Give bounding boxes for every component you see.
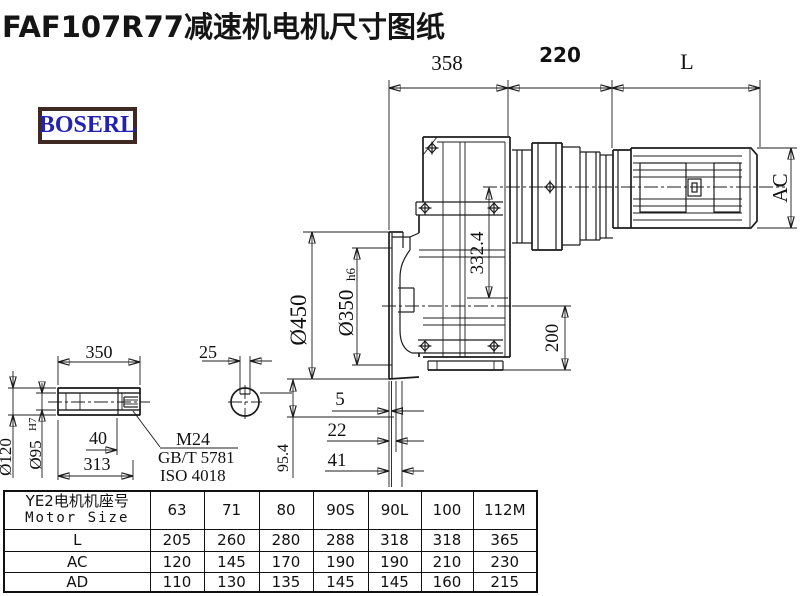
- table-cell: 190: [313, 551, 368, 572]
- dim-dia450-label: Ø450: [286, 294, 311, 345]
- table-cell: 260: [204, 529, 259, 551]
- dim-dia95-label: Ø95: [26, 440, 45, 469]
- dim-350-label: 350: [86, 342, 113, 362]
- motor: [483, 148, 785, 228]
- dim-95-4-label: 95.4: [275, 444, 292, 472]
- dim-358-label: 358: [431, 51, 463, 75]
- table-cell: 135: [259, 572, 313, 592]
- dim-dia350-label: Ø350: [334, 290, 358, 337]
- dim-25-label: 25: [199, 342, 217, 362]
- dim-220-label: 220: [539, 43, 581, 67]
- table-cell: 120: [150, 551, 204, 572]
- table-cell: 170: [259, 551, 313, 572]
- bolt-icon: [419, 340, 432, 353]
- dim-22-label: 22: [328, 420, 347, 441]
- page: { "title": "FAF107R77减速机电机尺寸图纸", "logo":…: [0, 0, 800, 596]
- motor-size-header-en: Motor Size: [5, 510, 150, 527]
- gearbox-housing: [382, 137, 525, 370]
- table-cell: 288: [313, 529, 368, 551]
- table-cell: 230: [473, 551, 537, 572]
- table-cell: 318: [368, 529, 421, 551]
- row-label: L: [4, 529, 150, 551]
- table-header-row: YE2电机机座号 Motor Size 63 71 80 90S 90L 100…: [4, 491, 537, 529]
- table-cell: 71: [204, 491, 259, 529]
- bolt-icon: [488, 340, 501, 353]
- flange-diameter-dimensions: Ø450 Ø350 h6: [286, 232, 392, 379]
- eyebolt-icon: [426, 142, 439, 155]
- table-cell: 90S: [313, 491, 368, 529]
- table-cell: 100: [421, 491, 473, 529]
- table-cell: 215: [473, 572, 537, 592]
- row-label: AD: [4, 572, 150, 592]
- dim-313-label: 313: [84, 454, 111, 474]
- table-cell: 110: [150, 572, 204, 592]
- motor-size-table: YE2电机机座号 Motor Size 63 71 80 90S 90L 100…: [3, 490, 538, 593]
- dim-41-label: 41: [328, 450, 347, 471]
- table-cell: 145: [313, 572, 368, 592]
- table-cell: 145: [368, 572, 421, 592]
- table-cell: 145: [204, 551, 259, 572]
- table-cell: 112M: [473, 491, 537, 529]
- table-cell: 280: [259, 529, 313, 551]
- table-row: L 205 260 280 288 318 318 365: [4, 529, 537, 551]
- table-cell: 210: [421, 551, 473, 572]
- dim-AC: AC: [757, 148, 797, 228]
- bolt-icon: [419, 202, 432, 215]
- thread-standard-1: GB/T 5781: [158, 448, 235, 467]
- table-row: AC 120 145 170 190 190 210 230: [4, 551, 537, 572]
- table-cell: 90L: [368, 491, 421, 529]
- table-cell: 130: [204, 572, 259, 592]
- shaft-end-view: 25: [199, 342, 272, 419]
- table-cell: 63: [150, 491, 204, 529]
- motor-adapter-bell: [512, 143, 613, 250]
- dim-L-label: L: [680, 49, 693, 74]
- dim-AC-label: AC: [768, 173, 792, 202]
- dim-dia95-tolerance: H7: [27, 417, 39, 431]
- table-header-cell: YE2电机机座号 Motor Size: [4, 491, 150, 529]
- table-cell: 160: [421, 572, 473, 592]
- table-cell: 190: [368, 551, 421, 572]
- table-cell: 318: [421, 529, 473, 551]
- motor-size-header-cn: YE2电机机座号: [5, 493, 150, 510]
- hollow-shaft-detail: 350 Ø120 Ø95 H7 40 313 M24 GB/T 5781: [0, 342, 238, 485]
- dim-332-4: 332.4: [467, 188, 508, 298]
- table-cell: 80: [259, 491, 313, 529]
- thread-callout: M24: [176, 429, 210, 449]
- dim-5-label: 5: [335, 389, 345, 410]
- dim-40-label: 40: [89, 428, 107, 448]
- thread-standard-2: ISO 4018: [160, 466, 226, 485]
- table-row: AD 110 130 135 145 145 160 215: [4, 572, 537, 592]
- dim-200-label: 200: [542, 324, 563, 353]
- flange-offset-dimensions: 5 22 41 95.4: [260, 380, 424, 487]
- table-cell: 205: [150, 529, 204, 551]
- dim-dia350-tolerance: h6: [343, 268, 358, 282]
- output-flange: [389, 232, 419, 379]
- table-cell: 365: [473, 529, 537, 551]
- row-label: AC: [4, 551, 150, 572]
- dim-dia120-label: Ø120: [0, 438, 15, 476]
- dim-332-4-label: 332.4: [467, 231, 488, 274]
